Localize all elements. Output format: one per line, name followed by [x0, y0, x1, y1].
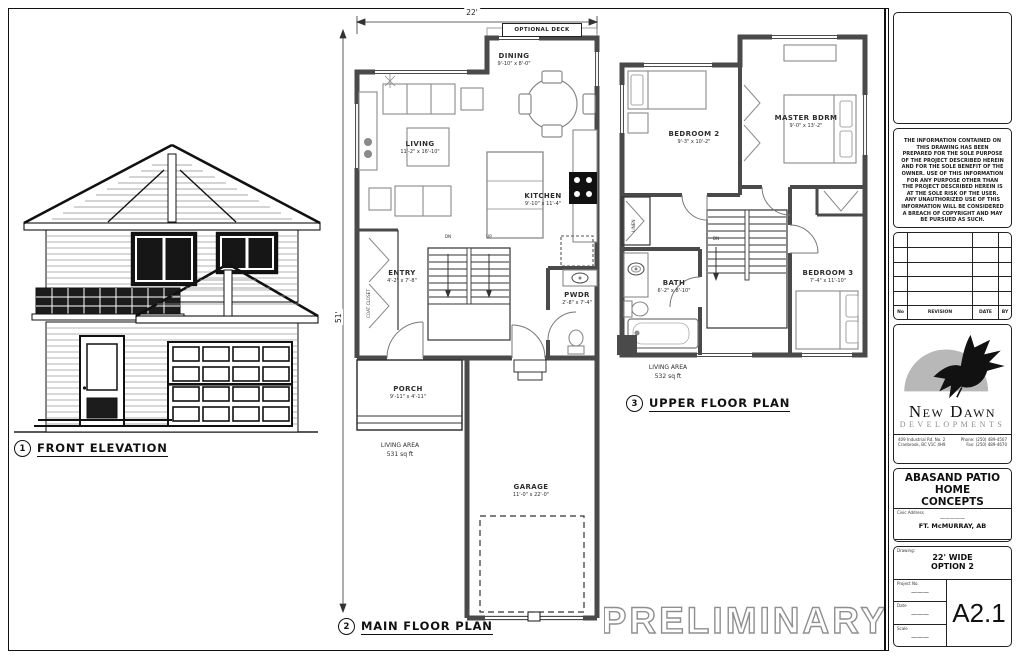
rev-col-date: DATE: [972, 305, 998, 319]
main-living-area: LIVING AREA531 sq ft: [381, 441, 419, 459]
new-dawn-logo-icon: [894, 329, 1012, 407]
date-field: Date ———: [894, 602, 946, 624]
preliminary-watermark: PRELIMINARY: [604, 592, 886, 650]
room-label-living: LIVING11'-2" x 16'-10": [400, 140, 439, 155]
revision-table: No REVISION DATE BY: [893, 232, 1012, 320]
rev-col-by: BY: [998, 305, 1011, 319]
drawing-sheet: 22' 51' OPTIONAL DECK DINING9'-10" x 8'-…: [0, 0, 1024, 663]
rev-col-revision: REVISION: [907, 305, 972, 319]
room-label-porch: PORCH9'-11" x 4'-11": [390, 385, 426, 400]
upper-living-area: LIVING AREA532 sq ft: [649, 363, 687, 381]
coat-closet-label: COAT CLOSET: [366, 289, 371, 318]
room-label-master: MASTER BDRM9'-0" x 13'-2": [775, 114, 838, 129]
linen-label: LINEN: [631, 220, 636, 232]
optional-deck-label: OPTIONAL DECK: [502, 23, 582, 37]
main-floor-plan-drawing: [335, 8, 610, 633]
scale-field: Scale ———: [894, 625, 946, 646]
room-label-entry: ENTRY4'-2" x 7'-8": [387, 269, 417, 284]
view-number-1: 1: [14, 440, 31, 457]
dim-depth: 51': [334, 309, 343, 325]
garage-door: [168, 342, 292, 426]
company-logo-panel: New Dawn DEVELOPMENTS 409 Industrial Rd.…: [893, 324, 1012, 464]
company-name: New Dawn: [894, 403, 1011, 420]
entry-door: [80, 336, 124, 426]
project-panel: ABASAND PATIO HOME CONCEPTS Civic Addres…: [893, 468, 1012, 542]
room-label-bath: BATH6'-2" x 8'-10": [657, 279, 690, 294]
upper-stair-dn-label: DN: [713, 236, 719, 241]
copyright-notice: THE INFORMATION CONTAINED ON THIS DRAWIN…: [893, 128, 1012, 228]
porch-outline: [357, 360, 546, 430]
main-floor-title: 2 MAIN FLOOR PLAN: [338, 618, 493, 635]
front-elevation-title: 1 FRONT ELEVATION: [14, 440, 168, 457]
company-subname: DEVELOPMENTS: [894, 420, 1011, 430]
civic-address-value: FT. McMURRAY, AB: [894, 522, 1011, 530]
view-number-3: 3: [626, 395, 643, 412]
legal-address-field: Legal Address: [894, 539, 1011, 542]
room-label-bedroom2: BEDROOM 29'-3" x 10'-2": [668, 130, 719, 145]
main-roof: [24, 145, 320, 230]
civic-address-field: Civic Address ————— FT. McMURRAY, AB: [894, 508, 1011, 539]
dim-width: 22': [464, 8, 480, 17]
upper-stairs: [707, 210, 787, 328]
view-number-2: 2: [338, 618, 355, 635]
front-elevation-drawing: [12, 140, 322, 440]
project-title: ABASAND PATIO HOME CONCEPTS: [894, 469, 1011, 508]
room-label-kitchen: KITCHEN9'-10" x 11'-4": [524, 192, 561, 207]
company-contact: 409 Industrial Rd. No. 2 Cranbrook, BC V…: [894, 434, 1011, 449]
project-no-field: Project No. ———: [894, 580, 946, 602]
room-label-garage: GARAGE11'-0" x 22'-0": [513, 483, 549, 498]
room-label-bedroom3: BEDROOM 37'-4" x 11'-10": [802, 269, 853, 284]
stair-dn-label: DN: [445, 234, 451, 239]
drawing-title-field: Drawing: 22' WIDE OPTION 2: [894, 547, 1011, 580]
stair-up-label: UP: [486, 234, 492, 239]
title-block-divider: [884, 8, 886, 651]
svg-text:PRELIMINARY: PRELIMINARY: [604, 600, 886, 641]
upper-floor-title: 3 UPPER FLOOR PLAN: [626, 395, 790, 412]
rev-col-no: No: [894, 305, 907, 319]
room-label-pwdr: PWDR2'-8" x 7'-4": [562, 291, 592, 306]
room-label-dining: DINING9'-10" x 8'-0": [497, 52, 530, 67]
title-block: THE INFORMATION CONTAINED ON THIS DRAWIN…: [888, 8, 1016, 651]
drawing-panel: Drawing: 22' WIDE OPTION 2 Project No. —…: [893, 546, 1012, 647]
sheet-number: A2.1: [947, 580, 1011, 646]
stairs: [428, 248, 510, 340]
title-block-blank-panel: [893, 12, 1012, 124]
upper-floor-plan-drawing: [612, 25, 874, 370]
